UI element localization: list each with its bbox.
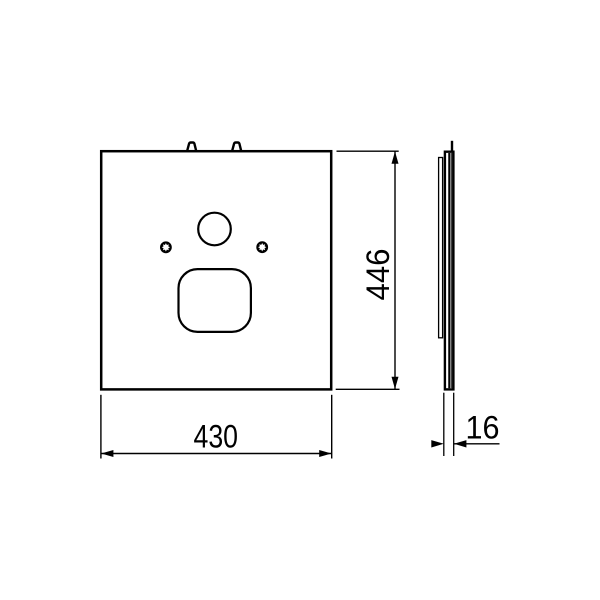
svg-text:16: 16 — [466, 409, 500, 445]
svg-text:446: 446 — [360, 249, 396, 301]
svg-text:430: 430 — [194, 418, 239, 454]
